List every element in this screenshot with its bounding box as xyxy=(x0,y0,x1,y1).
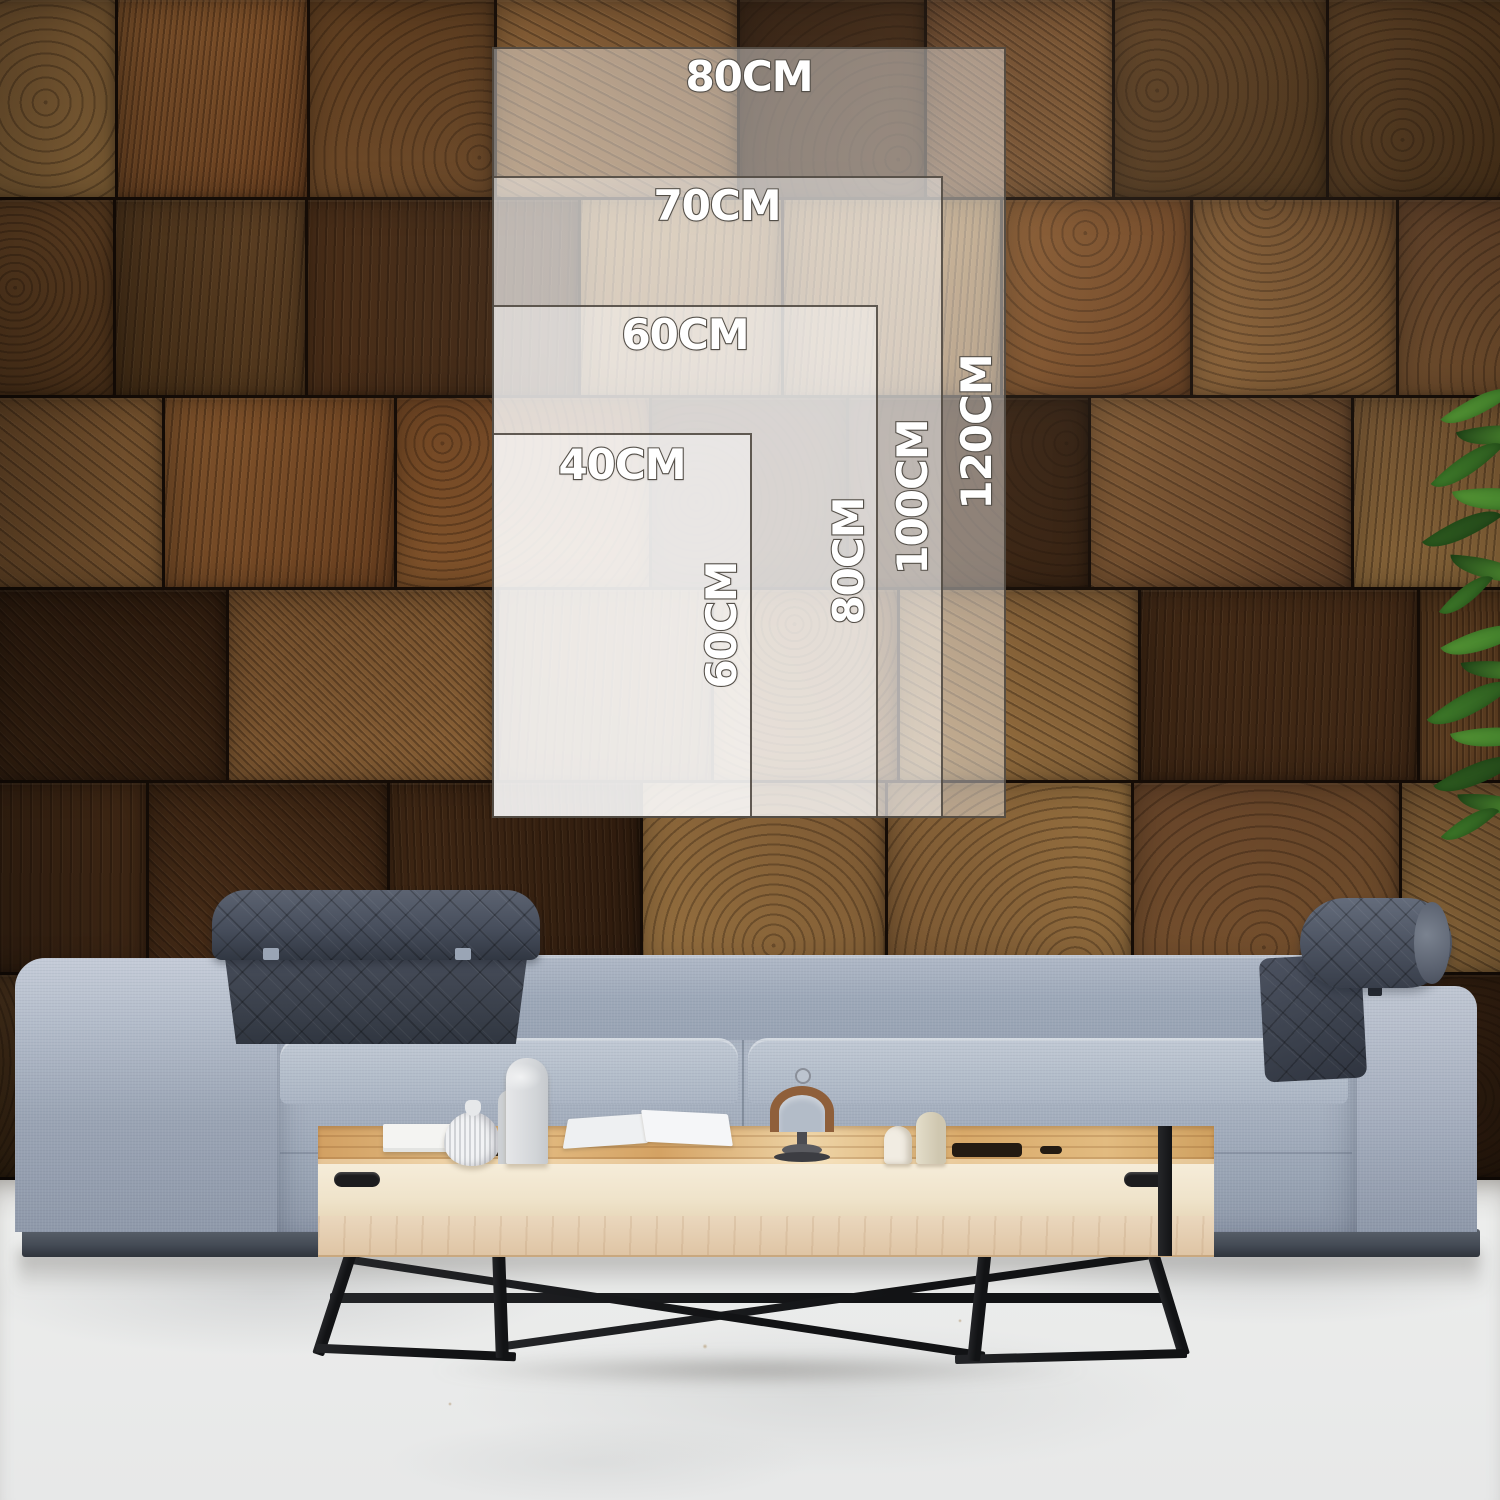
decor-dome-clock-knob xyxy=(795,1068,811,1084)
decor-ribbed-vase xyxy=(444,1112,500,1166)
wood-tile xyxy=(1003,200,1190,395)
decor-cream-dome xyxy=(884,1126,912,1164)
wood-tile xyxy=(0,398,162,587)
plant-leaves xyxy=(1406,388,1500,838)
size-width-label-60cm: 60CM xyxy=(621,314,748,356)
wood-tile xyxy=(165,398,394,587)
sofa-headrest-panel xyxy=(224,950,528,1044)
decor-dome-clock xyxy=(770,1086,834,1132)
wood-tile xyxy=(1141,590,1417,780)
sofa-armrest-right xyxy=(1357,986,1477,1232)
decor-open-book-page xyxy=(641,1110,733,1146)
sofa-seat-cushion-right xyxy=(748,1038,1348,1104)
table-end-bracket xyxy=(1158,1126,1172,1256)
decor-ribbed-vase-neck xyxy=(465,1100,481,1116)
size-height-label-80cm: 80CM xyxy=(828,497,870,624)
table-front-upper xyxy=(318,1162,1214,1216)
size-width-label-70cm: 70CM xyxy=(653,185,780,227)
size-height-label-100cm: 100CM xyxy=(892,419,934,574)
wood-tile xyxy=(1115,0,1326,197)
product-size-guide-scene: 80CM 120CM 70CM 100CM 60CM 80CM 40CM 60C… xyxy=(0,0,1500,1500)
wood-tile xyxy=(0,0,115,197)
wood-tile xyxy=(118,0,307,197)
size-width-label-40cm: 40CM xyxy=(558,444,685,486)
decor-vase-tall xyxy=(506,1058,548,1164)
wood-tile xyxy=(1091,398,1351,587)
wood-tile xyxy=(0,200,113,395)
plant-leaf xyxy=(1450,715,1500,759)
table-top-slot xyxy=(1040,1146,1062,1154)
table-front-lower xyxy=(318,1216,1214,1257)
size-height-label-60cm: 60CM xyxy=(701,561,743,688)
table-top-slot xyxy=(952,1143,1022,1157)
sofa-headrest-roll xyxy=(212,890,540,960)
wood-tile xyxy=(310,0,494,197)
decor-dome-clock-plate xyxy=(774,1152,830,1162)
wood-tile xyxy=(0,590,226,780)
size-height-label-120cm: 120CM xyxy=(956,354,998,509)
decor-cream-cylinder xyxy=(916,1112,946,1164)
cylinder-headrest-endcap xyxy=(1414,902,1450,984)
table-leg-crossbar xyxy=(330,1293,1170,1303)
wood-tile xyxy=(0,783,146,972)
headrest-clip xyxy=(455,948,471,960)
wood-tile xyxy=(1399,200,1500,395)
decor-white-book xyxy=(383,1124,453,1152)
wood-tile xyxy=(229,590,496,780)
headrest-clip xyxy=(263,948,279,960)
wood-tile xyxy=(1193,200,1396,395)
decor-open-book-page xyxy=(563,1113,654,1149)
table-handle-slot xyxy=(334,1172,380,1187)
size-width-label-80cm: 80CM xyxy=(685,56,812,98)
wood-tile xyxy=(1329,0,1500,197)
wood-tile xyxy=(116,200,305,395)
